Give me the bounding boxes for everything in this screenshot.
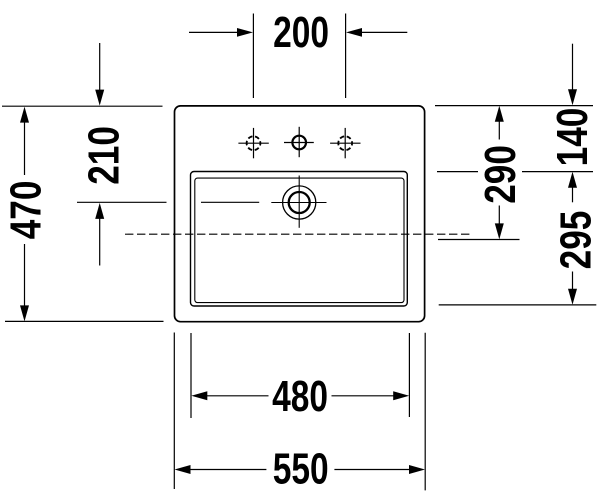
svg-text:210: 210 — [80, 126, 128, 185]
svg-text:550: 550 — [273, 445, 329, 493]
svg-text:290: 290 — [477, 145, 525, 204]
svg-text:480: 480 — [272, 373, 328, 421]
svg-text:295: 295 — [552, 211, 600, 270]
svg-text:140: 140 — [549, 108, 597, 167]
svg-text:470: 470 — [2, 181, 50, 240]
svg-text:200: 200 — [273, 9, 329, 57]
